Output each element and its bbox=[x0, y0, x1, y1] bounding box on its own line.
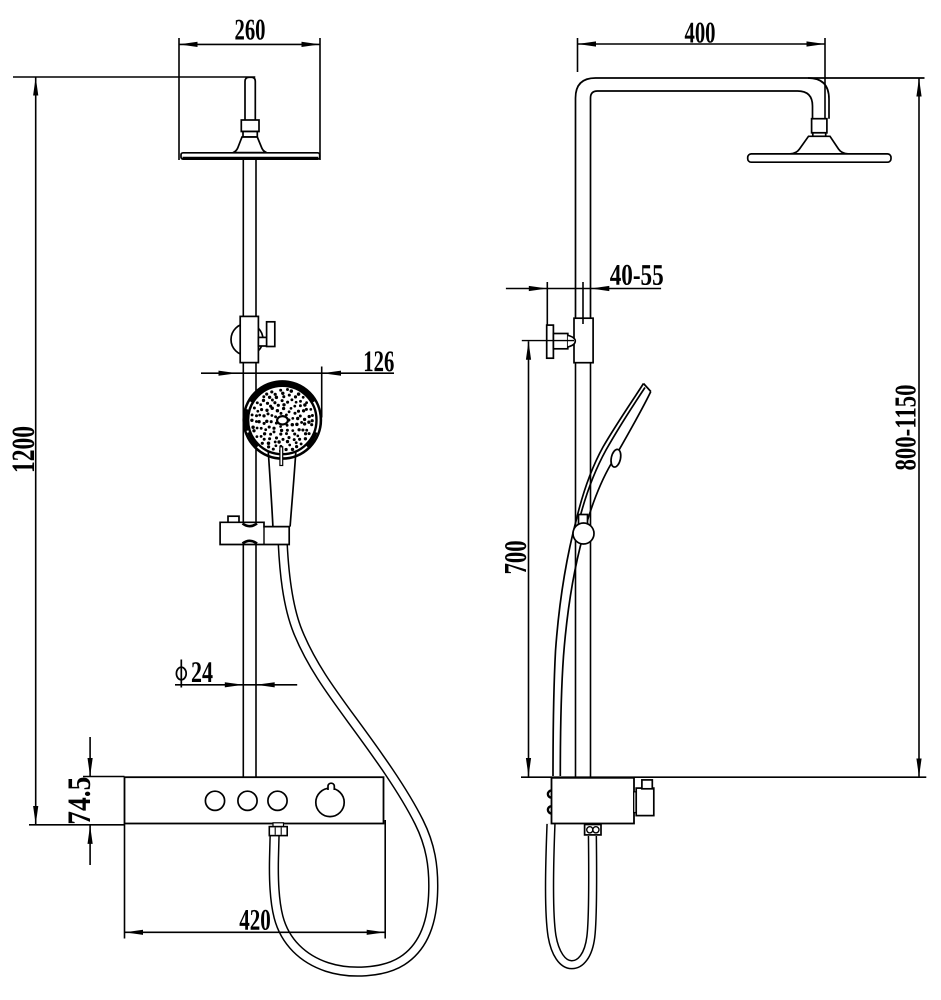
svg-text:74.5: 74.5 bbox=[62, 777, 98, 825]
svg-text:260: 260 bbox=[234, 13, 265, 46]
svg-text:800-1150: 800-1150 bbox=[888, 385, 923, 471]
svg-text:40-55: 40-55 bbox=[610, 259, 664, 292]
svg-text:700: 700 bbox=[497, 540, 533, 574]
svg-text:420: 420 bbox=[239, 904, 271, 937]
svg-text:1200: 1200 bbox=[6, 426, 42, 473]
